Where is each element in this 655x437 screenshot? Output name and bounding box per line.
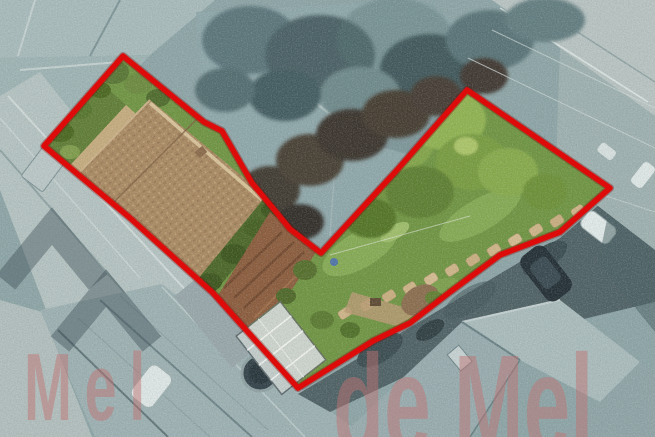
aerial-photo: Mel de Mel xyxy=(0,0,655,437)
brand-watermark-text-center: de Mel xyxy=(333,327,593,437)
brand-watermark-text-left: Mel xyxy=(24,333,158,437)
aerial-photo-canvas: Mel de Mel xyxy=(0,0,655,437)
